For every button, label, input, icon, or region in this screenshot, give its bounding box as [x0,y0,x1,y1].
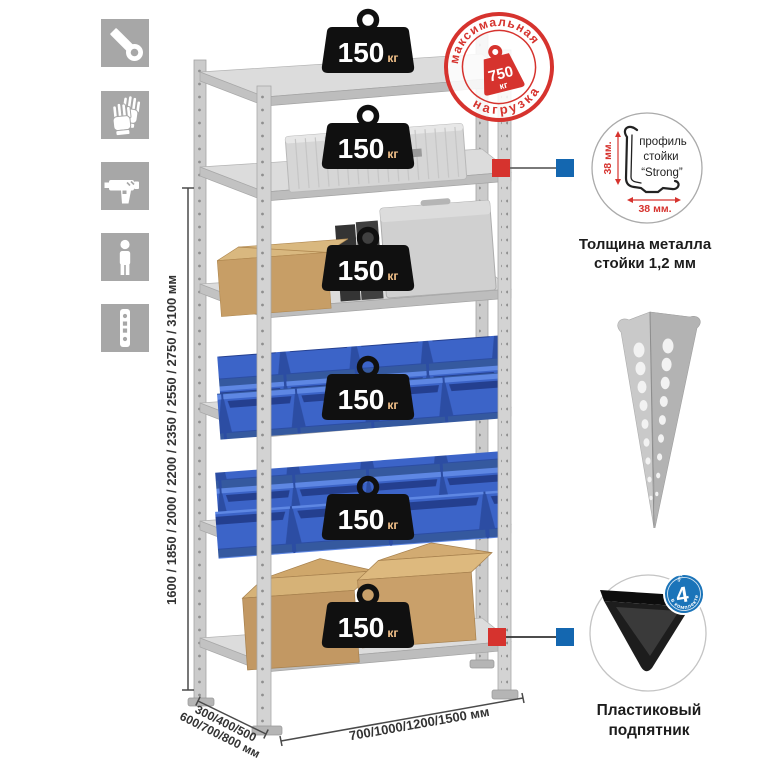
profile-dim-vertical-label: 38 мм. [602,141,614,174]
upright-profile-photo [618,312,701,528]
profile-label-1: профиль [639,136,687,148]
callout-bottom [488,628,574,646]
load-badge-2: 150кг [322,108,414,170]
profile-caption-2: стойки 1,2 мм [594,255,696,272]
depth-dimension-label: 300/400/500600/700/800 мм [178,698,269,761]
foot-caption-2: подпятник [608,722,689,739]
callout-marker-red-top [492,159,510,177]
foot-caption-1: Пластиковый [597,702,702,719]
profile-dim-horizontal-label: 38 мм. [638,203,671,215]
load-badge-1: 150кг [322,12,414,74]
profile-label-3: “Strong” [641,167,683,179]
profile-detail: 38 мм. 38 мм. профиль стойки “Strong” [592,113,702,223]
height-dimension-label: 1600 / 1850 / 2000 / 2200 / 2350 / 2550 … [164,275,179,605]
height-dimension [182,188,194,690]
scene: 150кг 150кг 150кг 150кг 150кг 150кг [0,0,765,765]
callout-marker-blue-bottom [556,628,574,646]
load-badges: 150кг 150кг 150кг 150кг 150кг 150кг [322,12,414,649]
badge-unit: кг [387,51,398,65]
profile-label-2: стойки [643,151,678,163]
width-dimension-label: 700/1000/1200/1500 мм [348,704,491,743]
callout-marker-red-bottom [488,628,506,646]
max-load-stamp: максимальная нагрузка 750 кг [435,3,563,131]
product-infographic: 150кг 150кг 150кг 150кг 150кг 150кг [0,0,765,765]
callout-marker-blue-top [556,159,574,177]
badge-value: 150 [338,37,385,68]
callout-top [492,159,574,177]
plastic-foot-detail: 4 штуки в комплекте [590,565,707,691]
profile-caption-1: Толщина металла [579,236,712,253]
